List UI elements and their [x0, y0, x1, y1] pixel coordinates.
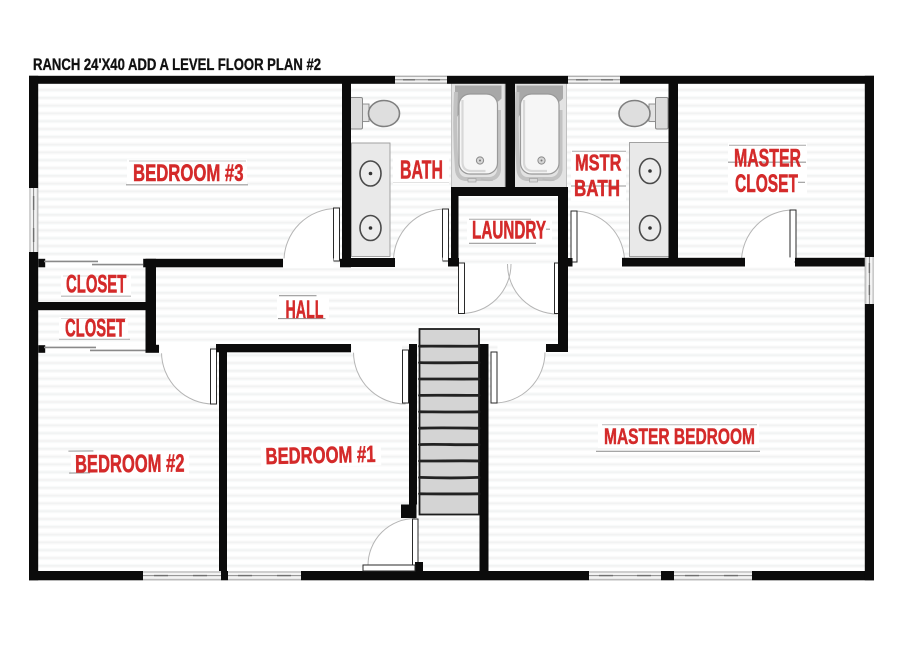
svg-text:BEDROOM #1: BEDROOM #1: [265, 441, 376, 469]
svg-text:BATH: BATH: [400, 156, 443, 184]
svg-text:HALL: HALL: [286, 297, 324, 324]
svg-text:CLOSET: CLOSET: [66, 272, 126, 299]
svg-text:BEDROOM #2: BEDROOM #2: [75, 450, 185, 479]
svg-text:LAUNDRY: LAUNDRY: [472, 218, 546, 245]
svg-text:MASTER: MASTER: [734, 145, 801, 172]
svg-text:MASTER BEDROOM: MASTER BEDROOM: [604, 424, 755, 449]
svg-text:CLOSET: CLOSET: [65, 315, 125, 342]
svg-text:BEDROOM #3: BEDROOM #3: [133, 160, 244, 187]
svg-text:BATH: BATH: [574, 175, 620, 201]
svg-text:RANCH 24'X40 ADD A LEVEL FLOOR: RANCH 24'X40 ADD A LEVEL FLOOR PLAN #2: [33, 55, 321, 74]
svg-text:MSTR: MSTR: [575, 150, 622, 176]
svg-text:CLOSET: CLOSET: [735, 171, 798, 198]
